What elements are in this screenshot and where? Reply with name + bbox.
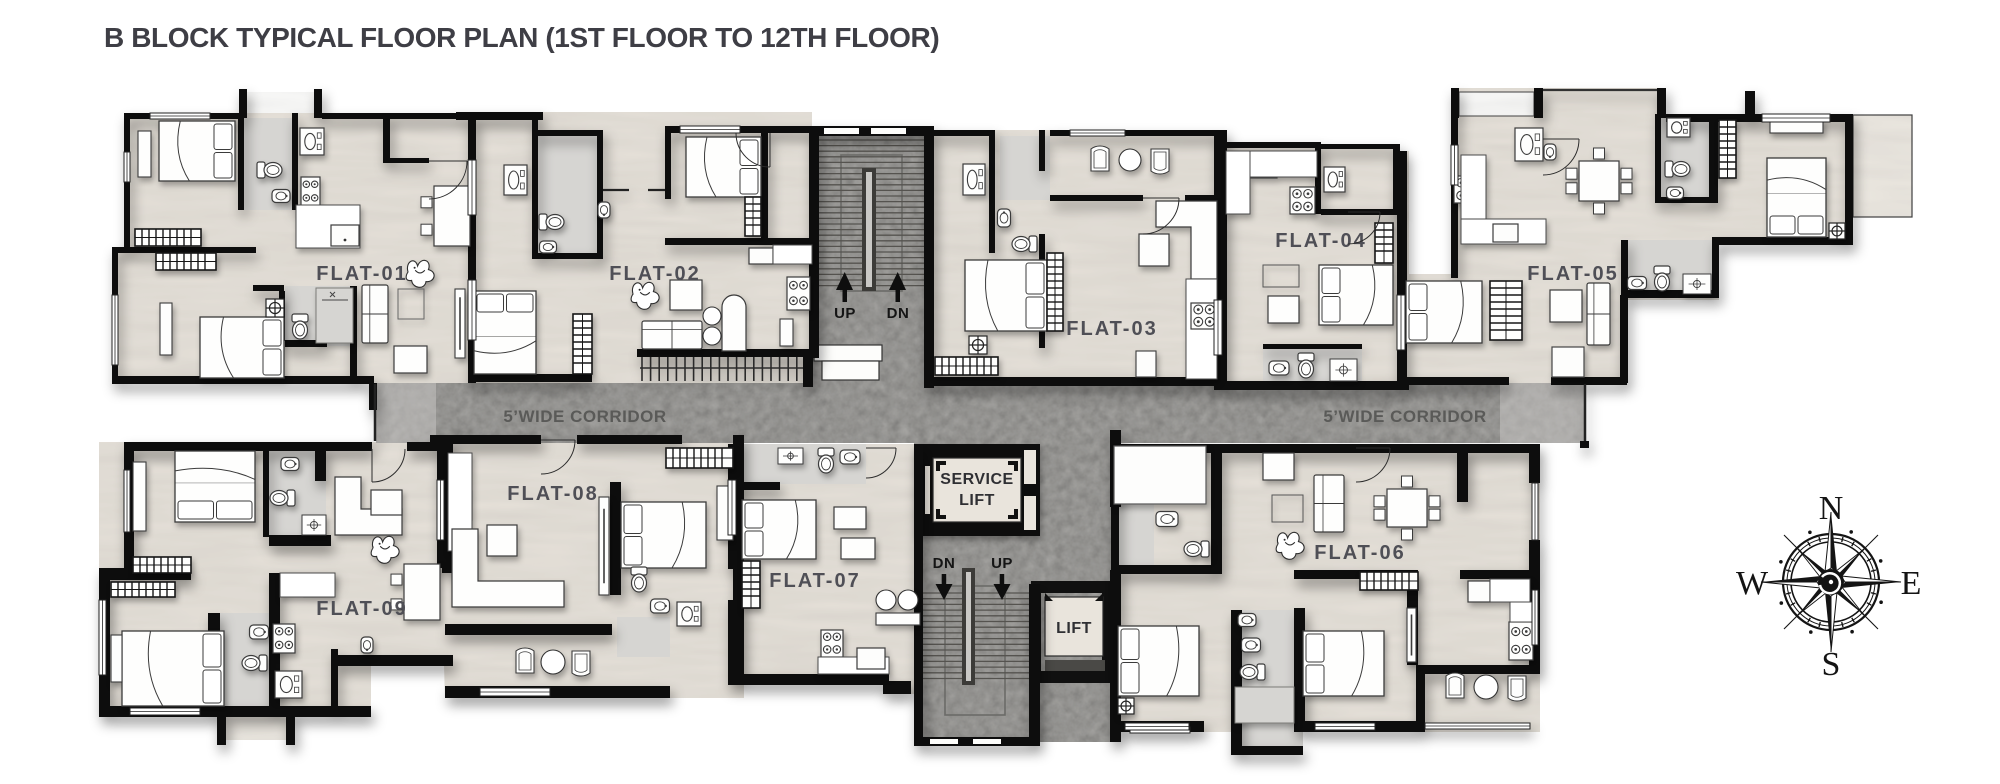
svg-text:5’WIDE CORRIDOR: 5’WIDE CORRIDOR [503, 407, 666, 426]
svg-text:FLAT-05: FLAT-05 [1527, 263, 1618, 285]
svg-text:B BLOCK TYPICAL FLOOR PLAN (1S: B BLOCK TYPICAL FLOOR PLAN (1ST FLOOR TO… [104, 22, 939, 53]
svg-text:FLAT-07: FLAT-07 [769, 570, 860, 592]
svg-text:FLAT-01: FLAT-01 [316, 263, 407, 285]
svg-text:E: E [1901, 565, 1922, 602]
svg-text:S: S [1822, 646, 1841, 683]
svg-text:LIFT: LIFT [959, 492, 995, 509]
svg-text:DN: DN [887, 305, 910, 322]
svg-text:N: N [1819, 490, 1844, 527]
svg-text:W: W [1736, 565, 1769, 602]
svg-text:FLAT-04: FLAT-04 [1275, 230, 1366, 252]
svg-text:UP: UP [991, 555, 1013, 572]
svg-text:FLAT-06: FLAT-06 [1314, 542, 1405, 564]
svg-text:FLAT-03: FLAT-03 [1066, 318, 1157, 340]
svg-text:FLAT-02: FLAT-02 [609, 263, 700, 285]
svg-text:5’WIDE CORRIDOR: 5’WIDE CORRIDOR [1323, 407, 1486, 426]
svg-text:FLAT-09: FLAT-09 [316, 598, 407, 620]
svg-text:FLAT-08: FLAT-08 [507, 483, 598, 505]
svg-text:SERVICE: SERVICE [940, 471, 1013, 488]
svg-text:DN: DN [933, 555, 956, 572]
svg-text:UP: UP [834, 305, 856, 322]
svg-text:LIFT: LIFT [1056, 620, 1092, 637]
